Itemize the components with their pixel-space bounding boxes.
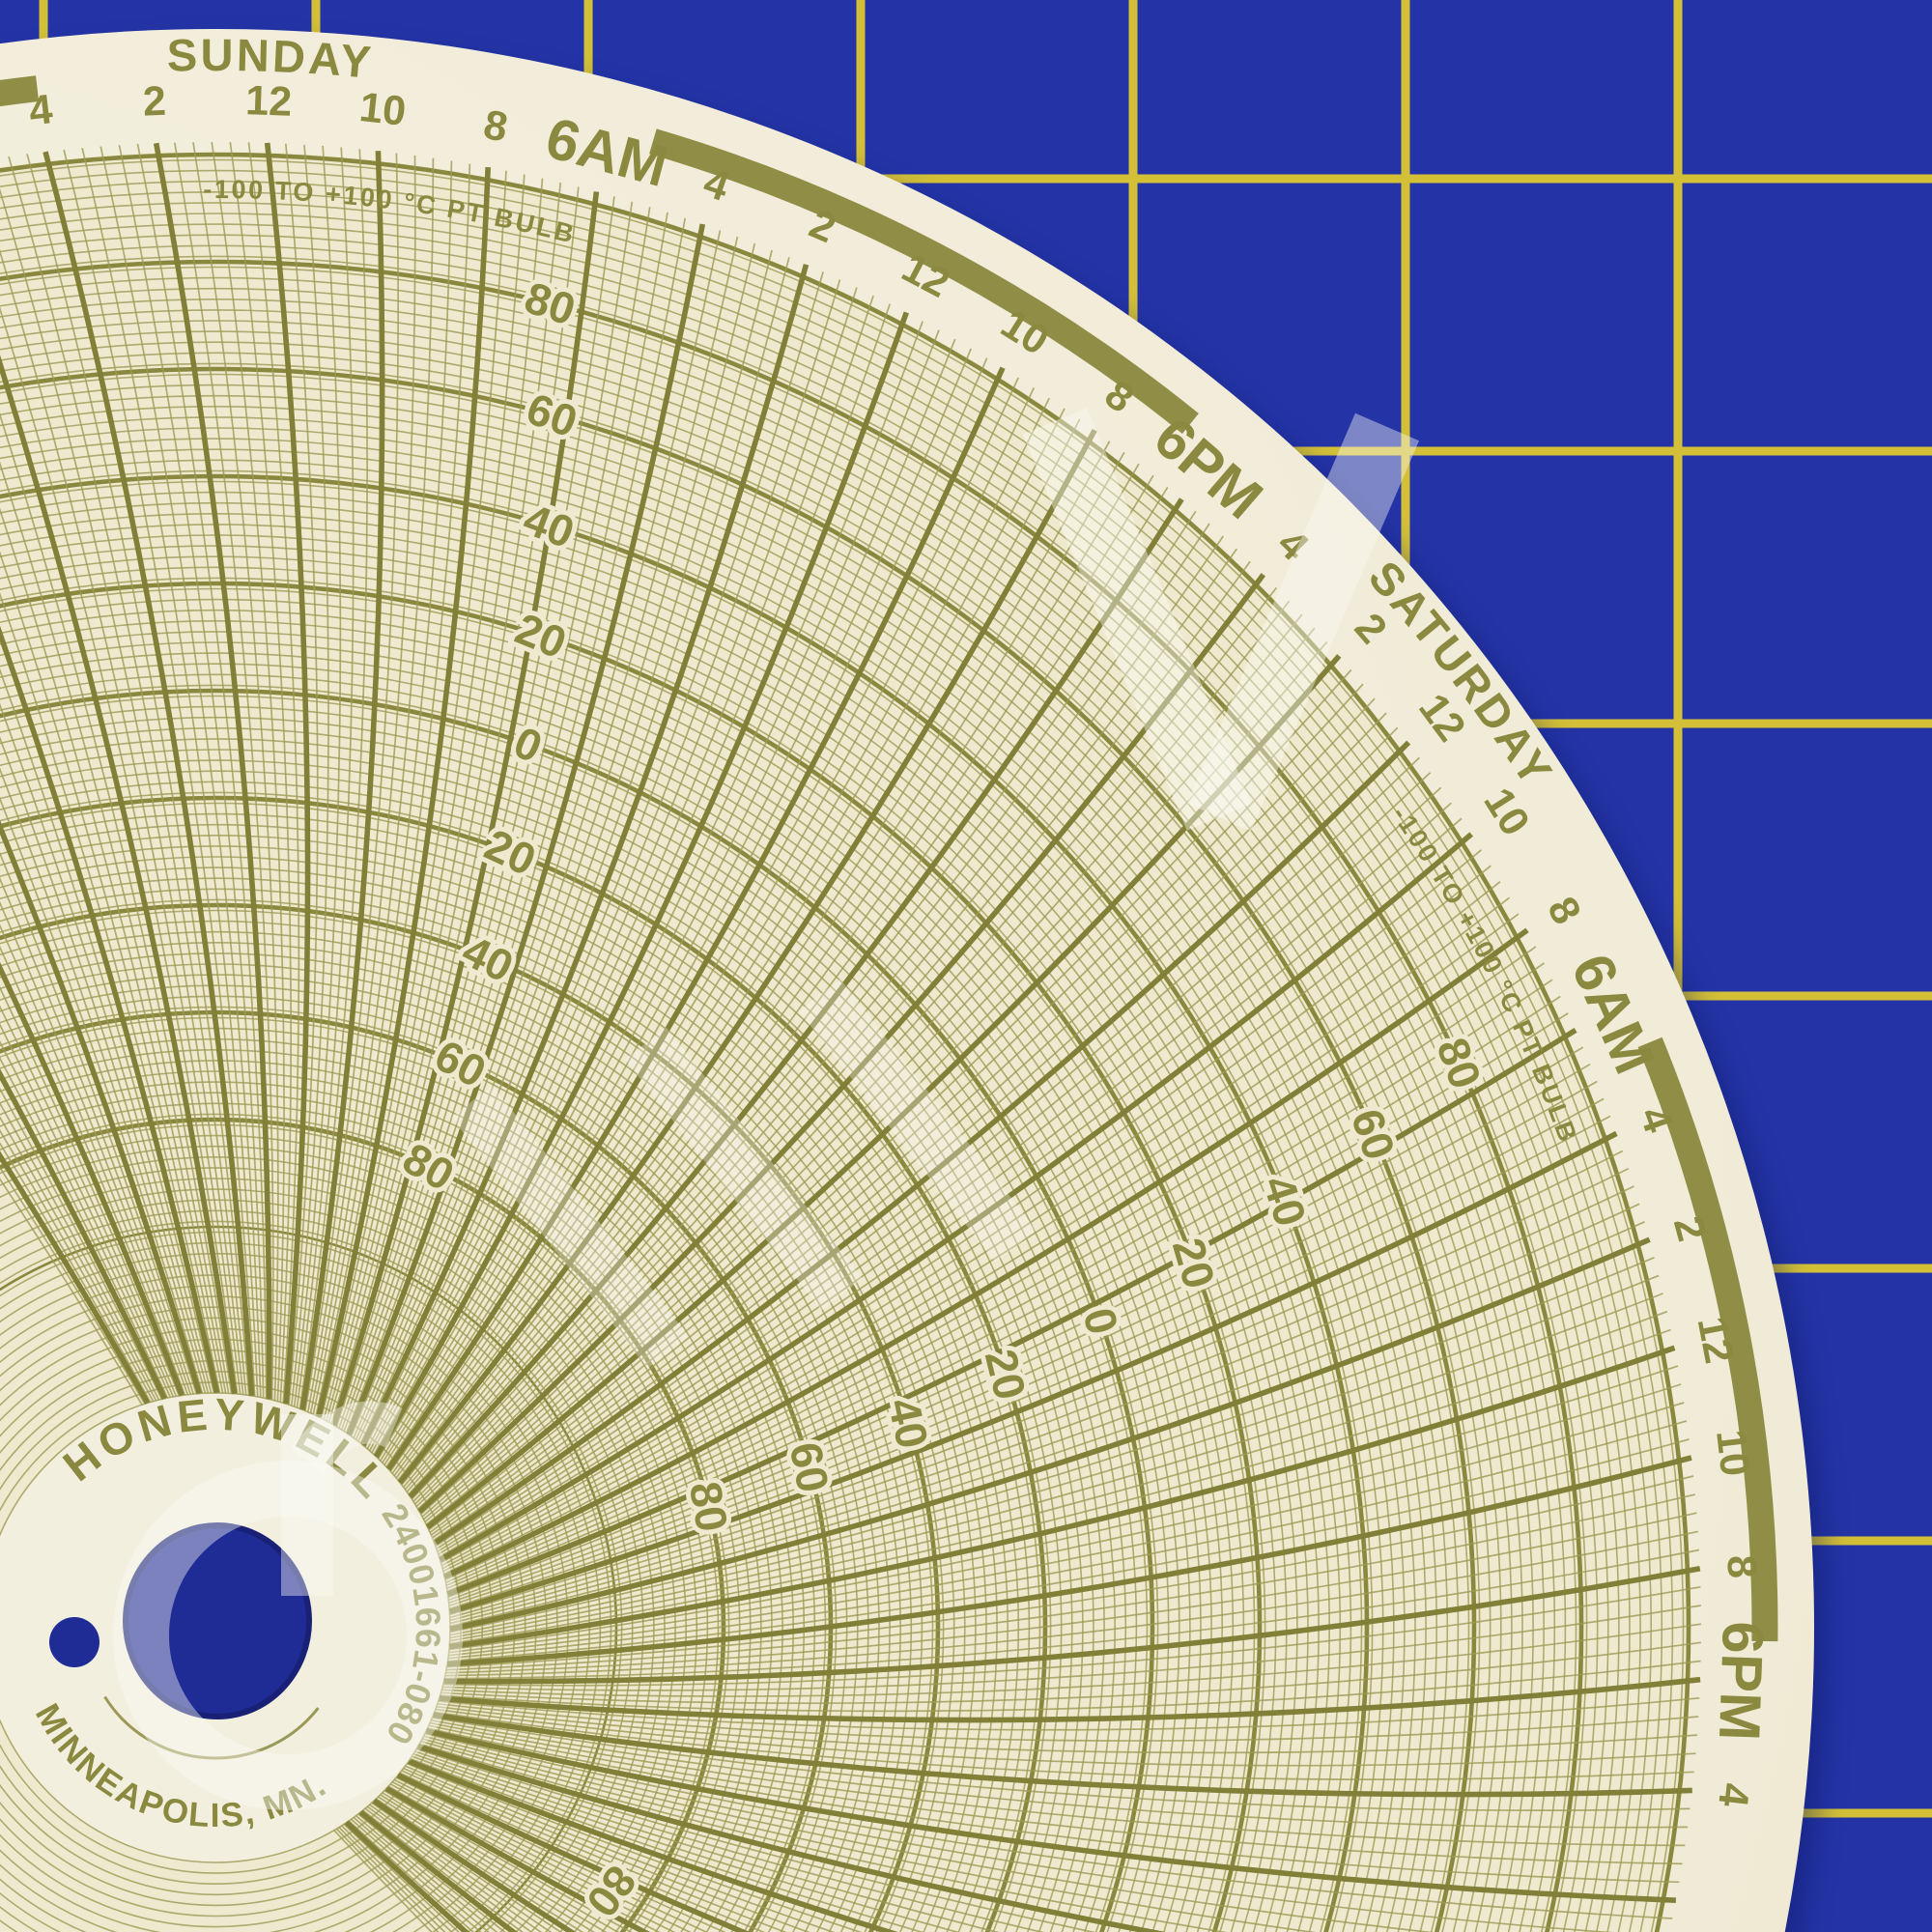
product-photo: 6PM42121086AM42121086PM42121086AM4212108… [0, 0, 1932, 1932]
scale-label-set1: 40 [879, 1394, 939, 1453]
scale-label-set1: 80 [680, 1478, 738, 1535]
scene-svg: 6PM42121086AM42121086PM42121086AM4212108… [0, 0, 1932, 1932]
scale-label-set1: 60 [781, 1438, 839, 1496]
rim-label-six-oclock: 6PM [1707, 1620, 1776, 1742]
rim-label-hour: 2 [142, 78, 167, 126]
rim-label-hour: 10 [357, 84, 409, 135]
day-label-sunday: SUNDAY [166, 29, 376, 88]
rim-label-hour: 12 [244, 77, 292, 126]
drive-hole [49, 1617, 99, 1667]
rim-label-hour: 12 [1689, 1313, 1743, 1367]
rim-label-hour: 10 [1707, 1428, 1758, 1479]
rim-label-hour: 8 [1718, 1554, 1765, 1579]
